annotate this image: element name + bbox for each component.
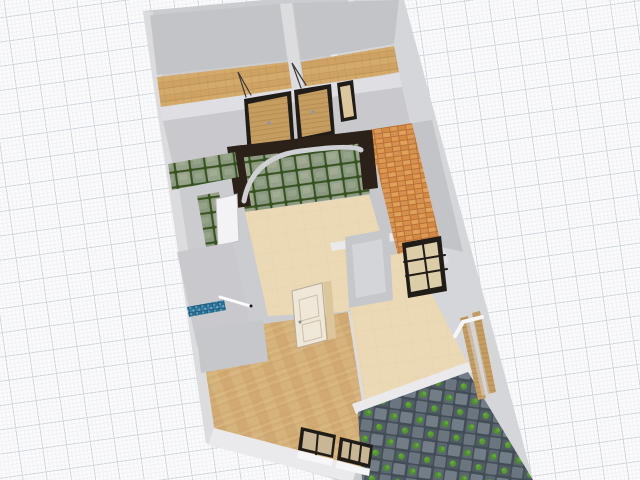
bathroom-2-open-door	[216, 194, 239, 246]
towel-rail-end	[250, 305, 253, 308]
open-white-door-leaf	[292, 283, 327, 348]
open-glass-door-pane	[352, 239, 386, 298]
floorplan-3d-viewport[interactable]	[0, 0, 640, 480]
interior-door-1-handle	[267, 121, 271, 125]
open-white-door-handle	[299, 321, 302, 324]
interior-door-2-handle	[311, 110, 315, 114]
floorplan-3d-scene	[0, 0, 640, 480]
